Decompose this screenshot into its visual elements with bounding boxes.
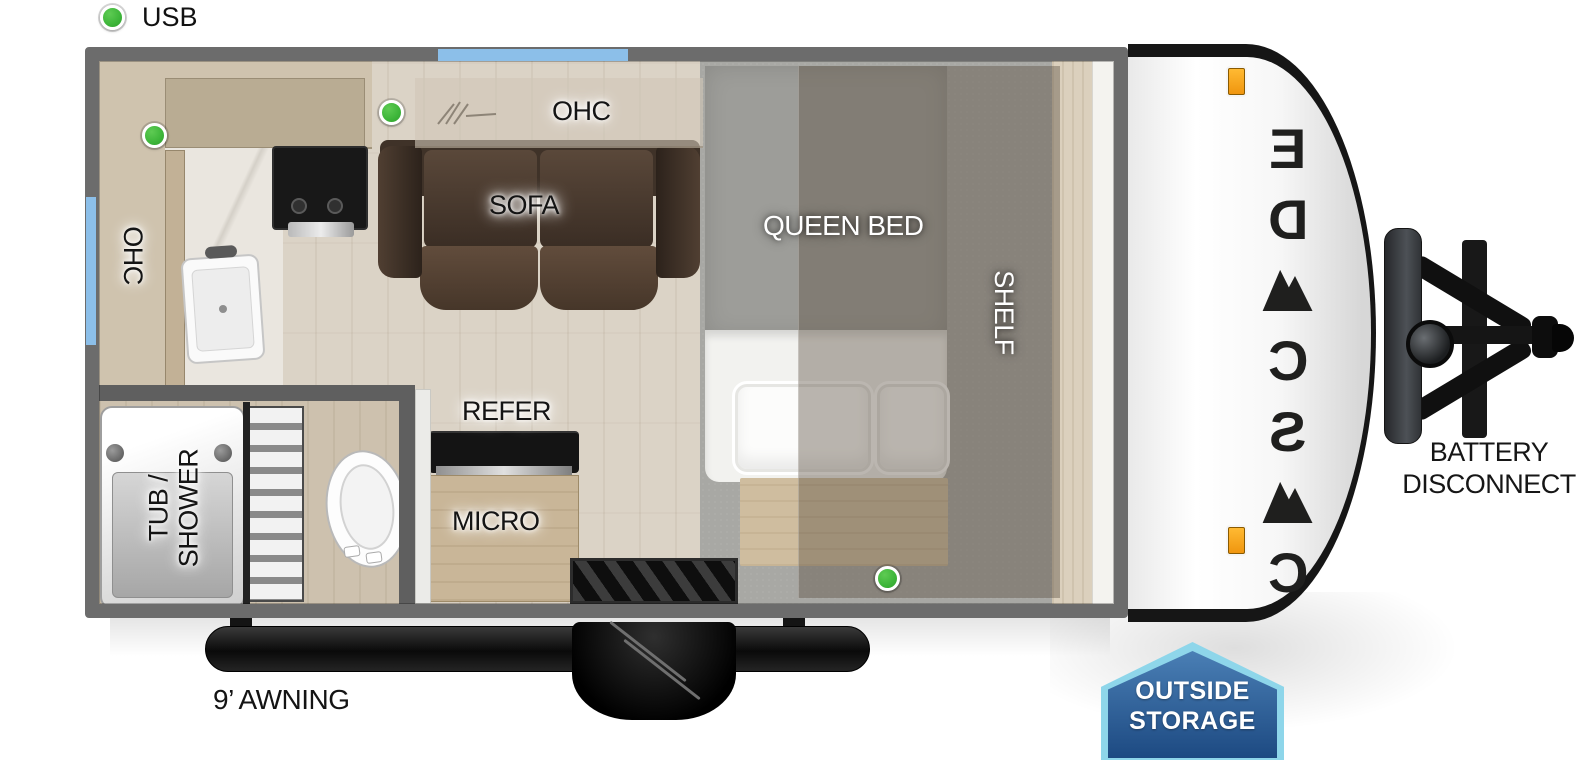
brand-letter-A <box>1260 257 1316 323</box>
battery-line1: BATTERY <box>1394 436 1584 468</box>
usb-legend-icon <box>100 5 125 30</box>
tongue-jack-icon <box>1406 320 1454 368</box>
outside-storage-line2: STORAGE <box>1101 706 1284 736</box>
label-queen-bed: QUEEN BED <box>763 210 923 242</box>
usb-port-dot-bedside <box>875 566 900 591</box>
label-tub-line1: TUB / <box>143 449 173 568</box>
trailer-walls <box>85 47 1128 618</box>
mountain-icon <box>1260 477 1316 527</box>
brand-letter-C: C <box>1268 328 1308 394</box>
label-battery-disconnect: BATTERY DISCONNECT <box>1394 436 1584 500</box>
usb-port-dot-kitchen <box>142 123 167 148</box>
brand-letter-A <box>1260 469 1316 535</box>
window-top <box>438 49 628 61</box>
outside-storage-label: OUTSIDE STORAGE <box>1101 676 1284 736</box>
entry-step-outside <box>572 622 736 720</box>
label-shelf: SHELF <box>973 250 1033 374</box>
brand-letter-C: C <box>1268 540 1308 606</box>
floorplan-canvas: USB <box>0 0 1584 762</box>
brand-letter-D: D <box>1268 187 1308 253</box>
usb-port-dot-sofa <box>379 100 404 125</box>
label-sofa: SOFA <box>489 190 559 221</box>
brand-logo: EDCSC <box>1240 116 1336 606</box>
outside-storage-line1: OUTSIDE <box>1101 676 1284 706</box>
label-tub-shower: TUB / SHOWER <box>106 425 240 591</box>
usb-legend-label: USB <box>142 2 198 33</box>
window-left <box>86 197 96 345</box>
label-ohc-sofa: OHC <box>552 96 611 127</box>
legend: USB <box>100 2 198 33</box>
label-awning: 9’ AWNING <box>213 684 350 716</box>
label-micro: MICRO <box>452 506 540 537</box>
label-tub-line2: SHOWER <box>173 449 203 568</box>
label-ohc-kitchen: OHC <box>98 193 166 317</box>
marker-light-icon <box>1228 68 1245 95</box>
brand-letter-S: S <box>1269 399 1306 465</box>
hitch-coupler-latch <box>1552 324 1574 352</box>
label-refer: REFER <box>462 396 551 427</box>
brand-letter-E: E <box>1269 116 1306 182</box>
battery-line2: DISCONNECT <box>1394 468 1584 500</box>
mountain-icon <box>1260 265 1316 315</box>
awning-tube <box>205 626 870 672</box>
